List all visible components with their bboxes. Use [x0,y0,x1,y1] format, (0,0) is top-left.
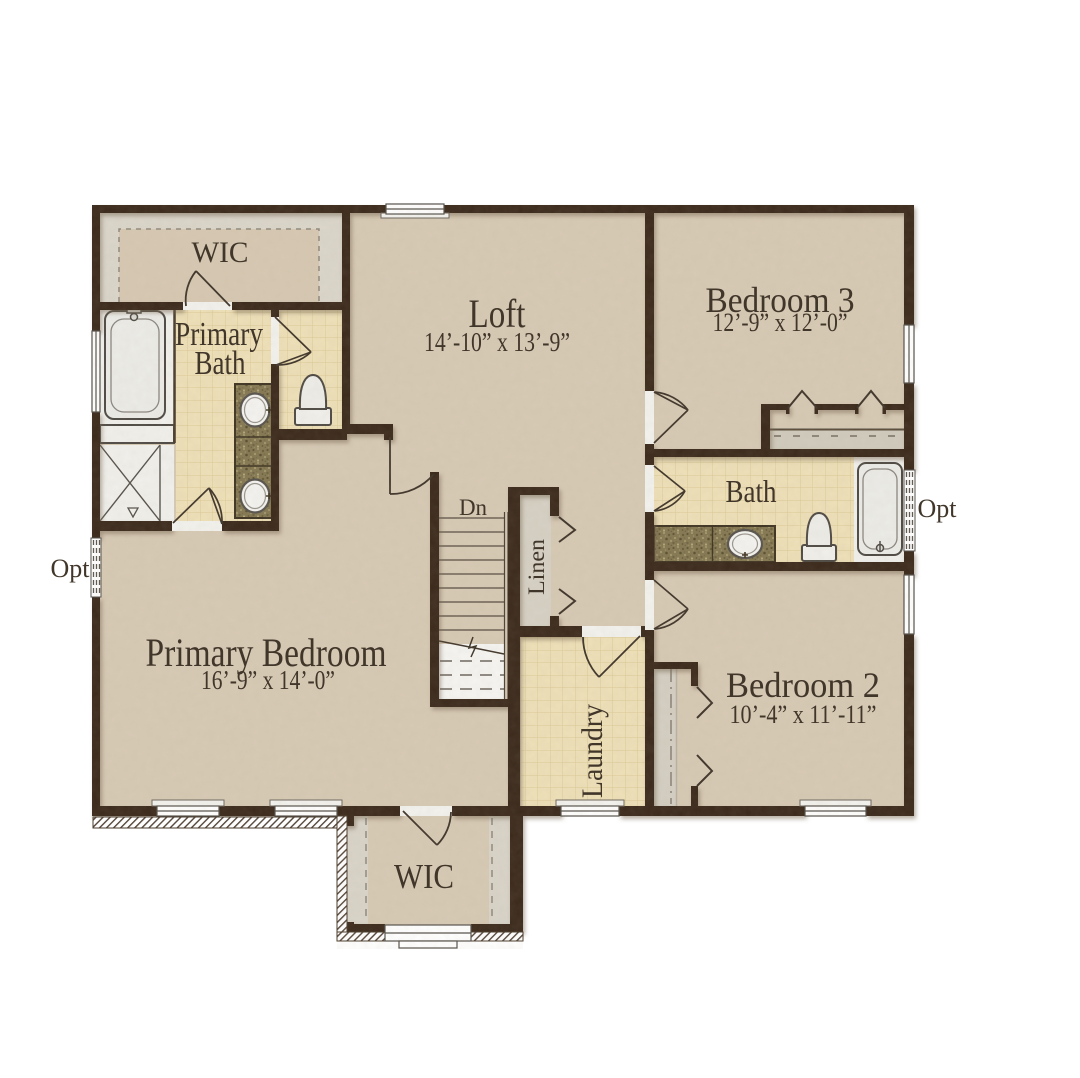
svg-text:Bath: Bath [195,345,246,382]
svg-text:Bath: Bath [726,473,777,509]
svg-text:Opt: Opt [51,554,91,583]
svg-text:Laundry: Laundry [576,704,609,798]
svg-text:Opt: Opt [918,494,958,523]
svg-text:WIC: WIC [192,236,249,269]
svg-text:12’-9” x 12’-0”: 12’-9” x 12’-0” [713,308,848,337]
svg-text:Linen: Linen [524,538,549,595]
svg-text:14’-10” x 13’-9”: 14’-10” x 13’-9” [424,327,570,357]
svg-text:WIC: WIC [394,857,454,896]
svg-text:Bedroom 2: Bedroom 2 [726,665,880,705]
svg-text:16’-9” x 14’-0”: 16’-9” x 14’-0” [201,665,335,695]
svg-text:10’-4” x 11’-11”: 10’-4” x 11’-11” [730,700,877,729]
svg-text:Dn: Dn [459,495,488,520]
